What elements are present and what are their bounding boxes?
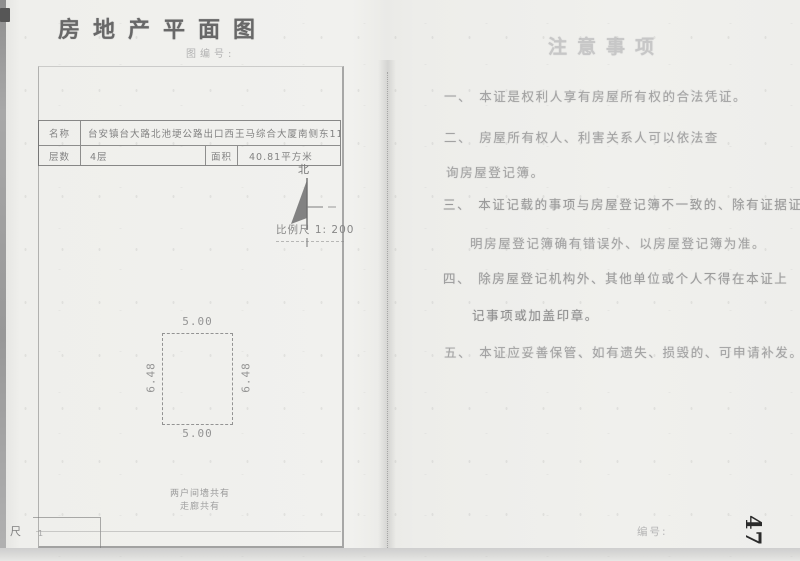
notice-item-2-continuation: 询房屋登记簿。	[446, 162, 545, 181]
area-value: 40.81平方米	[237, 145, 340, 165]
notice-item-1-number: 一、	[444, 89, 472, 104]
scan-bottom-edge	[0, 548, 800, 561]
title-block-box	[33, 517, 101, 548]
notice-item-2-number: 二、	[444, 130, 472, 145]
notice-item-4: 四、除房屋登记机构外、其他单位或个人不得在本证上	[443, 268, 788, 287]
scan-edge-mark	[0, 8, 10, 22]
scan-edge-strip	[0, 0, 6, 561]
notice-item-4-continuation: 记事项或加盖印章。	[472, 305, 599, 324]
notice-item-5: 五、本证应妥善保管、如有遗失、损毁的、可申请补发。	[444, 342, 800, 361]
notice-item-1-text: 本证是权利人享有房屋所有权的合法凭证。	[479, 89, 747, 104]
notice-item-5-number: 五、	[444, 345, 472, 360]
name-value: 台安镇台大路北池埂公路出口西王马综合大厦南侧东11间	[80, 121, 340, 145]
page-number: 47	[735, 515, 771, 543]
dimension-bottom: 5.00	[162, 427, 233, 440]
drawing-number-label: 图编号:	[186, 45, 235, 60]
document-title: 房地产平面图	[58, 12, 268, 44]
notice-title: 注意事项	[548, 32, 664, 59]
notice-item-4-number: 四、	[443, 271, 471, 286]
edge-character: 尺	[10, 523, 21, 539]
shared-corridor-note: 走廊共有	[152, 499, 248, 512]
notice-item-3-number: 三、	[443, 197, 471, 212]
dimension-top: 5.00	[162, 315, 233, 328]
title-block-mark: 1	[38, 529, 43, 538]
shared-wall-note: 两户间墙共有	[152, 486, 248, 499]
title-block-line	[36, 531, 341, 532]
scale-label: 比例尺 1: 200	[276, 222, 354, 237]
page-fold-line	[387, 72, 388, 550]
floors-value: 4层	[80, 145, 205, 165]
notice-item-2: 二、房屋所有权人、利害关系人可以依法查	[444, 127, 719, 146]
notice-item-3-text: 本证记载的事项与房屋登记簿不一致的、除有证据证	[478, 197, 800, 212]
floor-plan-outline	[162, 333, 233, 425]
notice-item-1: 一、本证是权利人享有房屋所有权的合法凭证。	[444, 86, 747, 105]
notice-item-3: 三、本证记载的事项与房屋登记簿不一致的、除有证据证	[443, 194, 800, 213]
dimension-left: 6.48	[145, 360, 158, 396]
serial-number-label: 编号:	[637, 524, 668, 539]
property-info-table: 名称 台安镇台大路北池埂公路出口西王马综合大厦南侧东11间 层数 4层 面积 4…	[38, 120, 341, 166]
notice-item-2-text: 房屋所有权人、利害关系人可以依法查	[479, 130, 719, 145]
scale-underline	[276, 241, 344, 242]
notice-item-5-text: 本证应妥善保管、如有遗失、损毁的、可申请补发。	[479, 345, 800, 360]
name-label: 名称	[39, 121, 80, 145]
scanned-document-spread: 房地产平面图 图编号: 名称 台安镇台大路北池埂公路出口西王马综合大厦南侧东11…	[0, 0, 800, 561]
notice-item-3-continuation: 明房屋登记簿确有错误外、以房屋登记簿为准。	[470, 233, 766, 252]
floors-label: 层数	[39, 145, 80, 165]
dimension-right: 6.48	[240, 360, 253, 396]
notice-item-4-text: 除房屋登记机构外、其他单位或个人不得在本证上	[478, 271, 788, 286]
area-label: 面积	[205, 145, 237, 165]
